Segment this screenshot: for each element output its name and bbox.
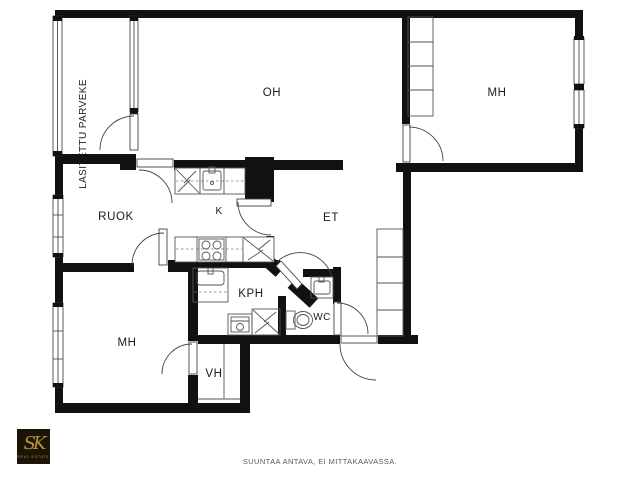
room-label-closet: VH bbox=[205, 368, 222, 380]
washing-machine-icon bbox=[228, 314, 252, 335]
room-label-balcony: LASITETTU PARVEKE bbox=[78, 79, 89, 189]
room-label-hall: ET bbox=[323, 212, 339, 224]
entry-door bbox=[340, 336, 377, 380]
balcony-glazing-right-window bbox=[130, 16, 138, 114]
bathroom-fixtures bbox=[193, 268, 280, 335]
bedroom2-window bbox=[53, 303, 63, 387]
room-label-bedroom2: MH bbox=[117, 337, 136, 349]
windows bbox=[53, 16, 584, 387]
living-to-dining-door bbox=[137, 159, 173, 203]
floor-plan-page: LASITETTU PARVEKE OH MH RUOK K ET KPH WC… bbox=[0, 0, 640, 480]
kitchen-counter-bottom-row bbox=[175, 237, 274, 262]
room-label-wc: WC bbox=[313, 312, 330, 323]
bedroom1-window bbox=[574, 36, 584, 128]
wc-to-hall-door bbox=[334, 302, 368, 335]
dining-to-bedroom2-door bbox=[132, 229, 167, 265]
room-labels: LASITETTU PARVEKE OH MH RUOK K ET KPH WC… bbox=[78, 79, 507, 380]
bathroom-sink-icon bbox=[193, 268, 228, 302]
room-label-living: OH bbox=[263, 87, 281, 99]
shower-cabinet-icon bbox=[252, 309, 280, 335]
floor-plan-canvas: LASITETTU PARVEKE OH MH RUOK K ET KPH WC… bbox=[0, 0, 640, 480]
hall-wardrobe bbox=[377, 229, 403, 336]
balcony-glazing-left-window bbox=[53, 16, 62, 156]
dining-window bbox=[53, 195, 63, 257]
toilet-icon bbox=[286, 311, 313, 329]
bedroom1-door bbox=[403, 125, 443, 162]
bedroom2-to-closet-door bbox=[162, 342, 197, 374]
kitchen-to-hall-door bbox=[237, 199, 271, 235]
room-label-bathroom: KPH bbox=[238, 288, 263, 300]
room-label-bedroom1: MH bbox=[487, 87, 506, 99]
bedroom1-wardrobe bbox=[408, 17, 433, 116]
room-label-kitchen: K bbox=[215, 206, 222, 217]
room-label-dining: RUOK bbox=[98, 211, 134, 223]
disclaimer-text: SUUNTAA ANTAVA, EI MITTAKAAVASSA. bbox=[0, 457, 640, 466]
logo-text: SK bbox=[24, 435, 44, 453]
balcony-door bbox=[100, 114, 138, 150]
kitchen-counter-top-row bbox=[175, 167, 245, 194]
